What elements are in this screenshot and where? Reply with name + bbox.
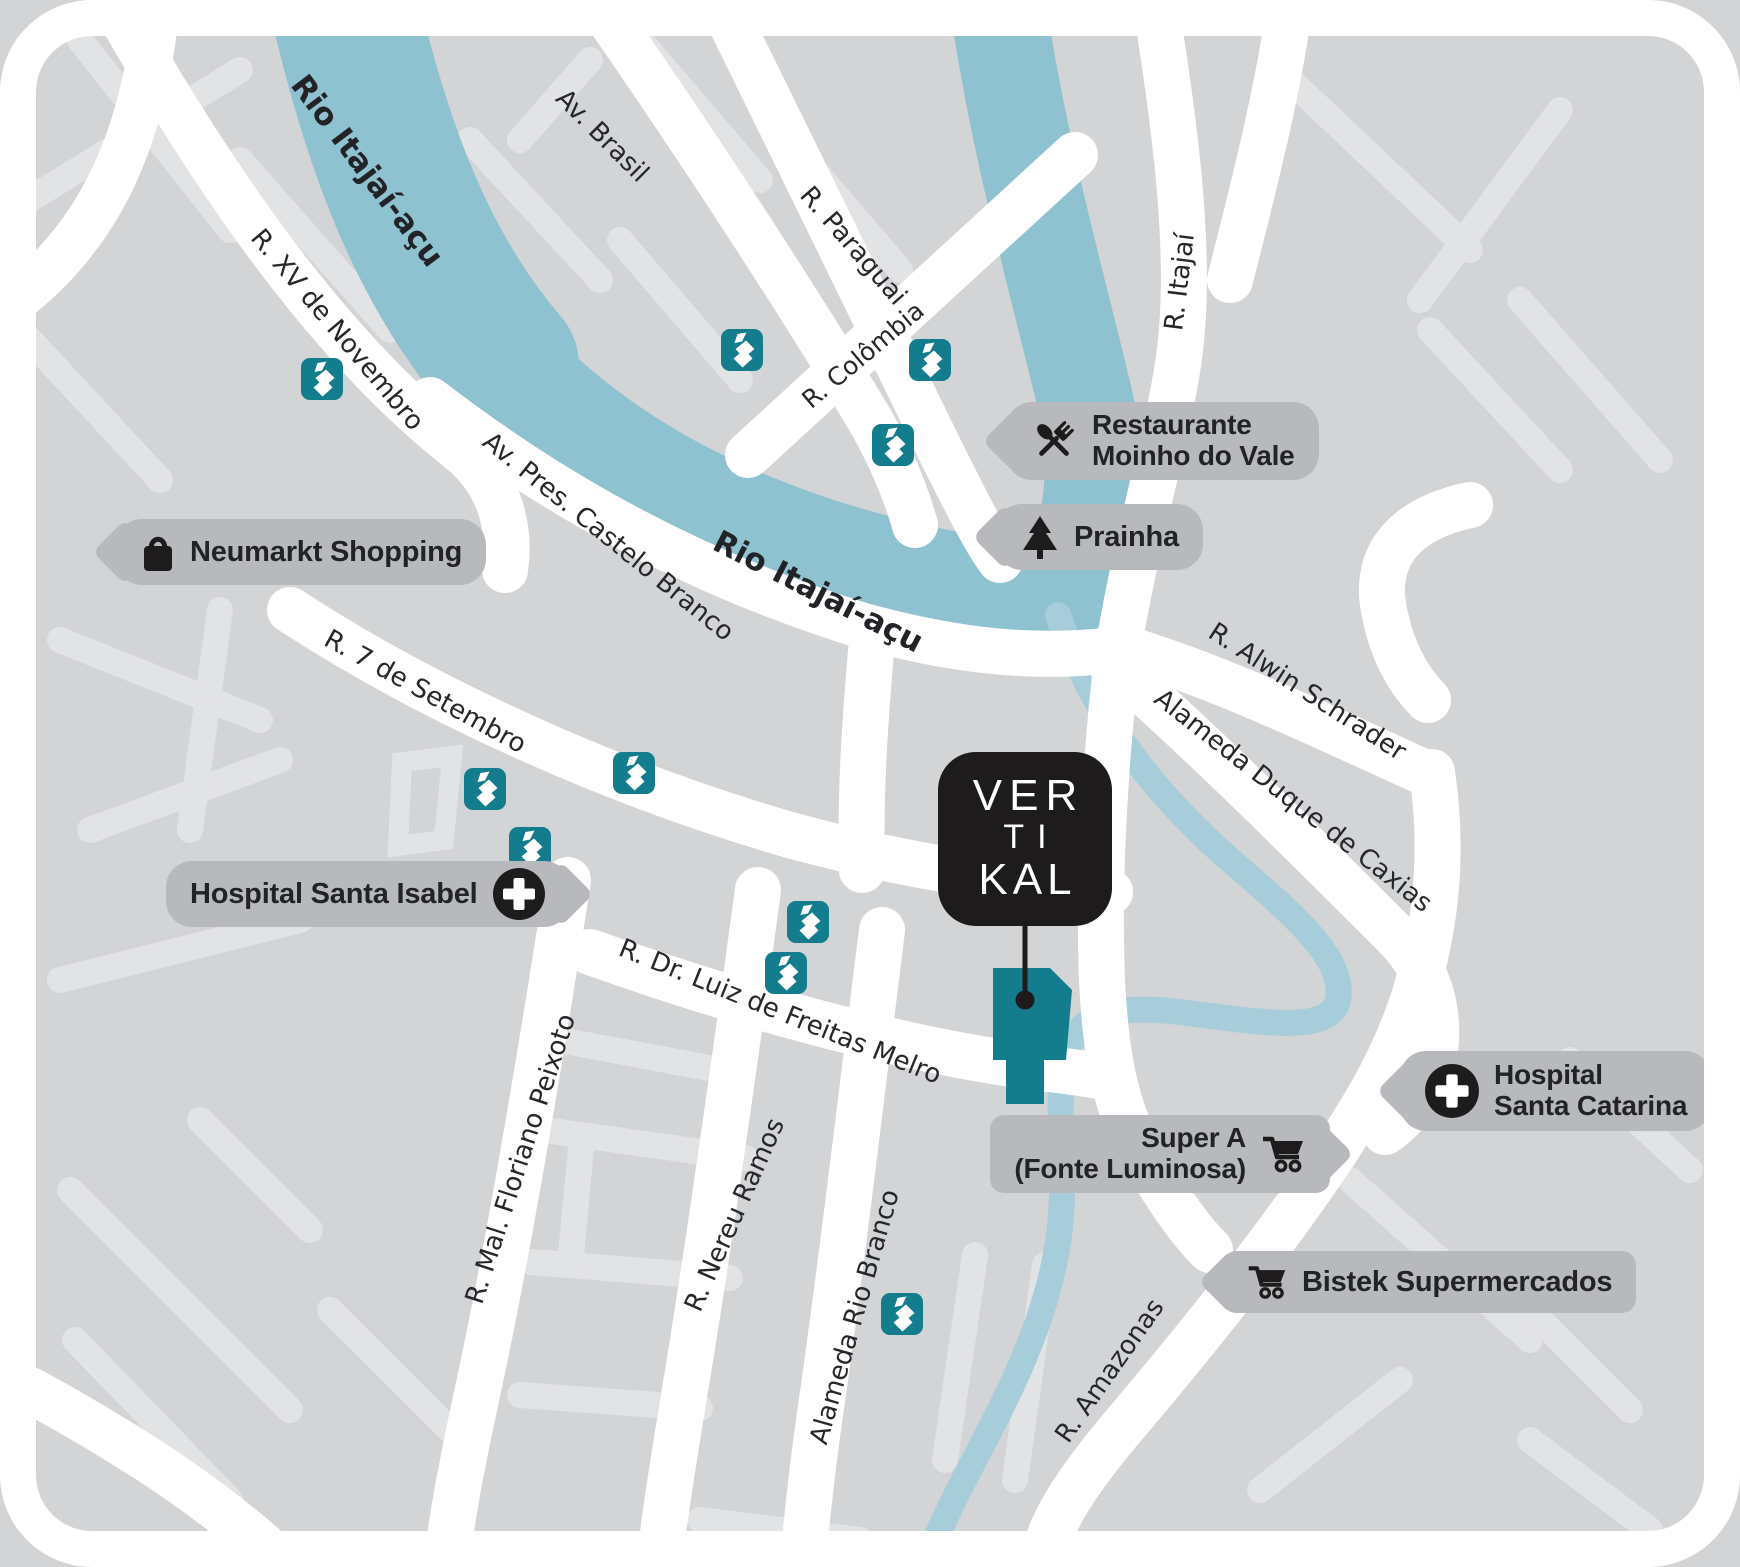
poi-label-text: Restaurante Moinho do Vale: [1092, 410, 1295, 472]
poi-line-1: Hospital: [1494, 1060, 1687, 1091]
poi-line-1: Super A: [1014, 1123, 1246, 1154]
vertikal-logo-line-2: TI: [1003, 818, 1059, 857]
brand-marker-icon: [787, 901, 829, 943]
shopping-cart-icon: [1246, 1262, 1288, 1302]
brand-marker: [765, 952, 807, 994]
poi-label-text: Prainha: [1074, 522, 1179, 552]
brand-marker: [464, 768, 506, 810]
brand-marker-icon: [765, 952, 807, 994]
map-canvas: Neumarkt Shopping: [0, 0, 1740, 1567]
pine-tree-icon: [1020, 514, 1060, 560]
brand-marker-icon: [301, 358, 343, 400]
poi-label-text: Bistek Supermercados: [1302, 1267, 1612, 1297]
vertikal-logo-line-1: VER: [973, 774, 1084, 818]
medical-cross-icon: [492, 867, 546, 921]
poi-line-2: Moinho do Vale: [1092, 441, 1295, 472]
poi-label-restaurante-moinho-do-vale: Restaurante Moinho do Vale: [1006, 402, 1319, 480]
brand-marker-icon: [464, 768, 506, 810]
road-hook-top-right: [1382, 505, 1470, 700]
poi-label-text: Hospital Santa Catarina: [1494, 1060, 1687, 1122]
brand-marker: [881, 1293, 923, 1335]
road-top-right: [1230, 0, 1295, 280]
brand-marker: [872, 424, 914, 466]
shopping-bag-icon: [140, 530, 176, 574]
road-west-of-vertikal: [862, 640, 872, 870]
poi-line-2: (Fonte Luminosa): [1014, 1154, 1246, 1185]
vertikal-pointer-dot: [1016, 991, 1035, 1010]
brand-marker: [909, 339, 951, 381]
poi-label-text: Hospital Santa Isabel: [190, 879, 478, 909]
brand-marker: [787, 901, 829, 943]
poi-label-text: Super A (Fonte Luminosa): [1014, 1123, 1246, 1185]
vertikal-logo-line-3: KAL: [978, 857, 1076, 903]
restaurant-icon: [1030, 417, 1078, 465]
shopping-cart-icon: [1260, 1133, 1306, 1175]
brand-marker: [613, 752, 655, 794]
brand-marker-icon: [881, 1293, 923, 1335]
poi-label-bistek-supermercados: Bistek Supermercados: [1222, 1251, 1636, 1313]
poi-label-neumarkt-shopping: Neumarkt Shopping: [116, 519, 486, 585]
brand-marker-icon: [909, 339, 951, 381]
poi-label-prainha: Prainha: [996, 504, 1203, 570]
poi-label-text: Neumarkt Shopping: [190, 537, 462, 567]
poi-label-super-a-fonte-luminosa: Super A (Fonte Luminosa): [990, 1115, 1330, 1193]
vertikal-logo: VER TI KAL: [938, 752, 1112, 926]
medical-cross-icon: [1424, 1063, 1480, 1119]
brand-marker: [301, 358, 343, 400]
poi-line-2: Santa Catarina: [1494, 1091, 1687, 1122]
poi-line-1: Restaurante: [1092, 410, 1295, 441]
city-map: Neumarkt Shopping: [0, 0, 1740, 1567]
poi-label-hospital-santa-isabel: Hospital Santa Isabel: [166, 861, 570, 927]
brand-marker-icon: [872, 424, 914, 466]
brand-marker-icon: [613, 752, 655, 794]
poi-label-hospital-santa-catarina: Hospital Santa Catarina: [1400, 1051, 1711, 1131]
brand-marker: [721, 329, 763, 371]
brand-marker-icon: [721, 329, 763, 371]
